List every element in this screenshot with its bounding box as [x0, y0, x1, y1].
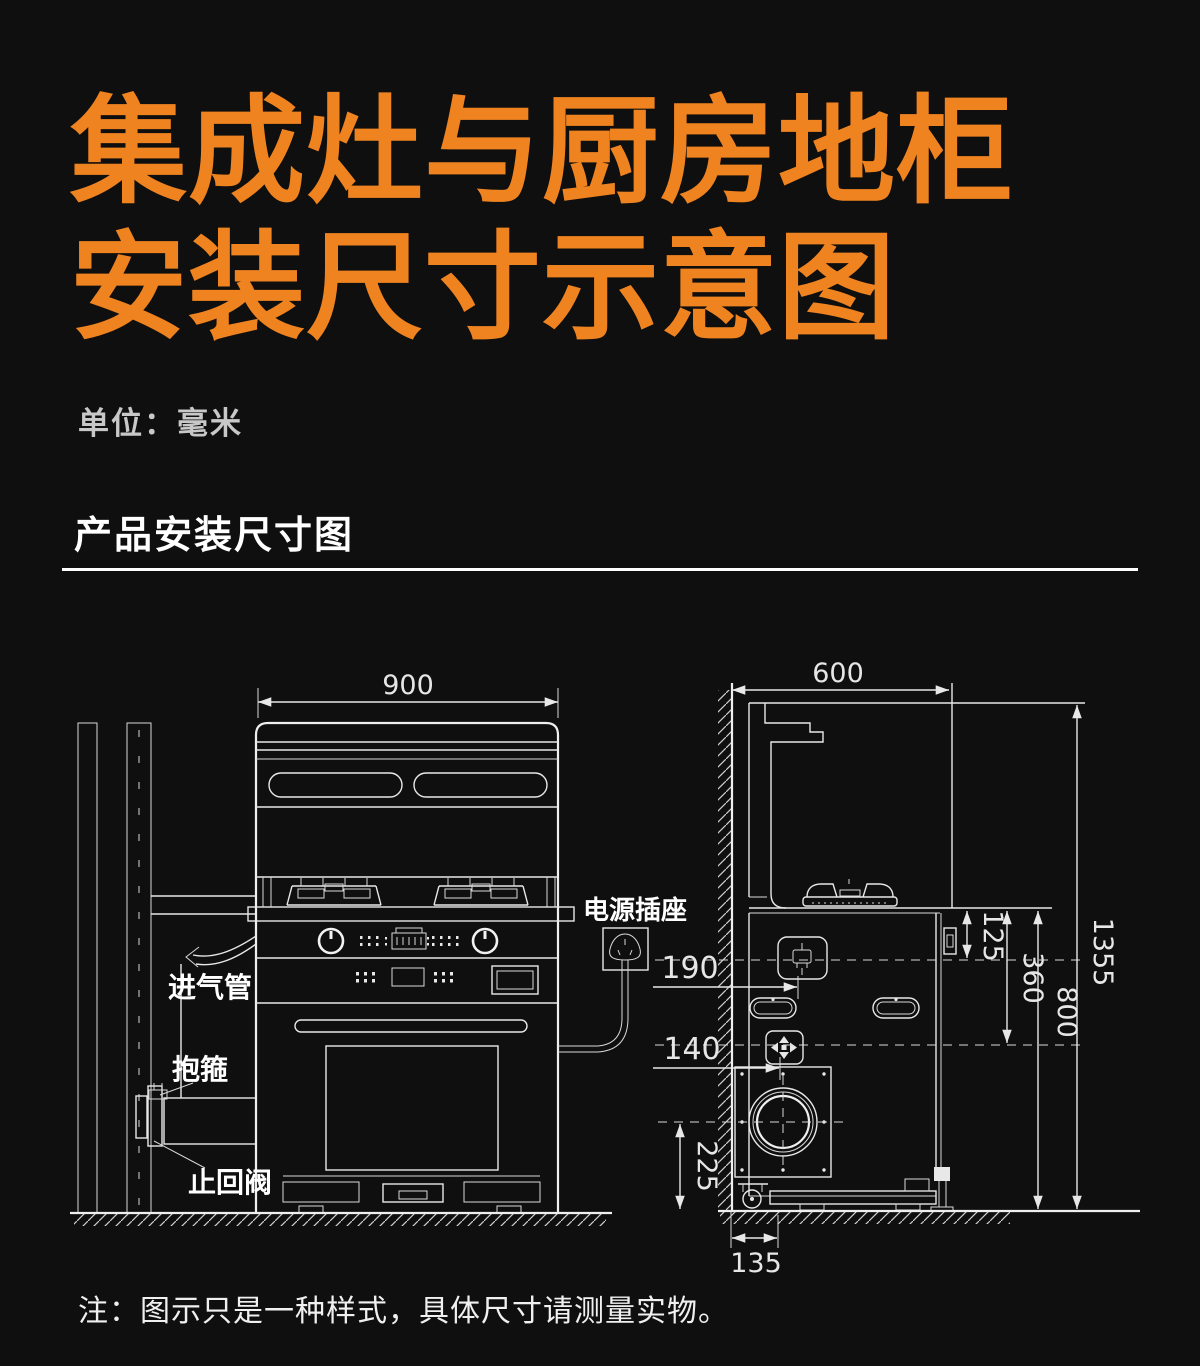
vent-slot-left	[750, 998, 796, 1018]
base-cabinet	[749, 913, 956, 1196]
dim-600: 600	[732, 658, 949, 690]
dim-125-text: 125	[977, 910, 1008, 962]
control-panel-display-row	[356, 966, 538, 994]
dim-360: 360	[1007, 911, 1048, 1043]
power-plug-icon	[610, 934, 641, 960]
ground-right	[718, 1211, 1140, 1224]
oven-display	[392, 968, 424, 986]
dim-135-text: 135	[730, 1248, 782, 1279]
burner-left	[287, 878, 381, 905]
oven-front	[283, 1020, 540, 1213]
footer-note: 注：图示只是一种样式，具体尺寸请测量实物。	[78, 1286, 729, 1330]
installation-diagram: 900 电源插座 进气管 抱箍 止回阀	[0, 0, 1200, 1366]
hood-profile	[749, 683, 1085, 908]
cross-arrow-icon	[771, 1036, 797, 1059]
side-panel-window	[492, 966, 538, 994]
dim-360-text: 360	[1017, 952, 1048, 1004]
dim-600-text: 600	[812, 658, 864, 689]
countertop-front	[248, 907, 574, 921]
bottom-vent-left	[283, 1182, 359, 1202]
dim-125: 125	[967, 910, 1008, 962]
burner-side-profile	[803, 879, 897, 906]
bottom-vent-right	[464, 1182, 540, 1202]
burner-right	[434, 878, 528, 905]
rear-socket	[778, 937, 827, 979]
control-panel-knobs	[319, 928, 497, 953]
front-view: 900 电源插座 进气管 抱箍 止回阀	[70, 670, 687, 1226]
base-platform	[738, 1167, 953, 1211]
gas-piping	[136, 896, 256, 1168]
power-cord	[558, 960, 622, 1046]
dim-225: 225	[680, 1124, 722, 1209]
corrugated-pipe	[164, 1098, 256, 1144]
gas-inlet-label: 进气管	[168, 971, 252, 1004]
side-view: 600 190 140 125 360 800 1355	[653, 658, 1140, 1279]
ground-left	[70, 1213, 612, 1226]
dim-900-text: 900	[382, 670, 434, 701]
check-valve-leader	[154, 1141, 205, 1168]
oven-window	[326, 1046, 498, 1170]
oven-handle	[295, 1020, 527, 1032]
dim-135: 135	[730, 1215, 782, 1279]
dim-1355: 1355	[1077, 705, 1118, 1209]
wall-chase-columns	[78, 723, 151, 1213]
dim-900: 900	[258, 670, 558, 718]
dim-1355-text: 1355	[1087, 918, 1118, 987]
vent-slot-right	[873, 998, 919, 1018]
gas-valve-port	[766, 1031, 803, 1064]
right-vent	[414, 773, 547, 797]
left-vent	[269, 773, 402, 797]
dim-140: 140	[653, 1032, 780, 1080]
side-latch	[944, 928, 956, 954]
clamp-label: 抱箍	[172, 1053, 228, 1086]
dim-225-text: 225	[691, 1140, 722, 1192]
power-socket-label: 电源插座	[583, 895, 687, 926]
dim-140-text: 140	[663, 1032, 720, 1067]
check-valve-label: 止回阀	[188, 1166, 272, 1199]
socket-plug-icon	[793, 943, 811, 975]
dim-190-text: 190	[661, 951, 718, 986]
